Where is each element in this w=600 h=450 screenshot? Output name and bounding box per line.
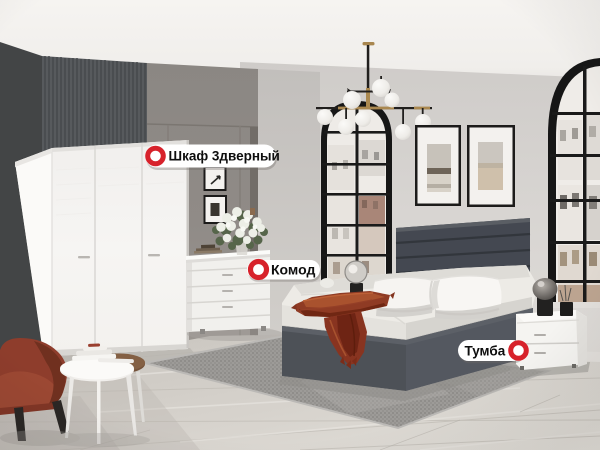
svg-text:Тумба: Тумба [465,344,506,359]
svg-text:Шкаф 3дверный: Шкаф 3дверный [169,149,280,164]
svg-text:Комод: Комод [271,262,315,278]
